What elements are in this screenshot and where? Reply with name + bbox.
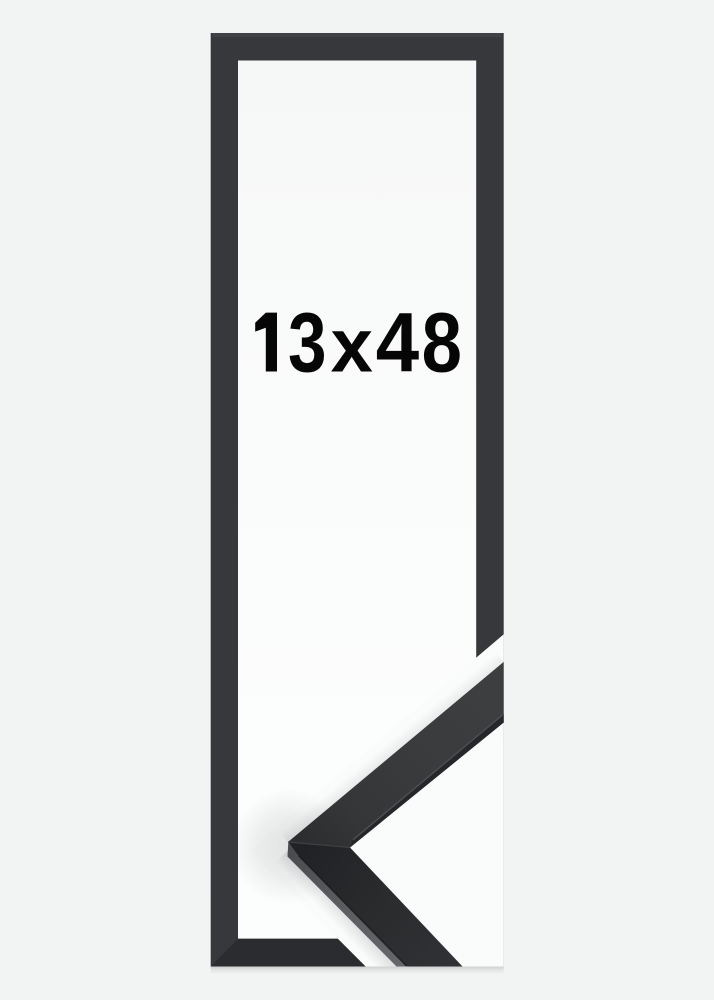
svg-text:x: x (331, 304, 373, 389)
svg-text:3: 3 (288, 296, 327, 390)
svg-text:4: 4 (376, 296, 420, 390)
svg-text:8: 8 (422, 296, 462, 390)
